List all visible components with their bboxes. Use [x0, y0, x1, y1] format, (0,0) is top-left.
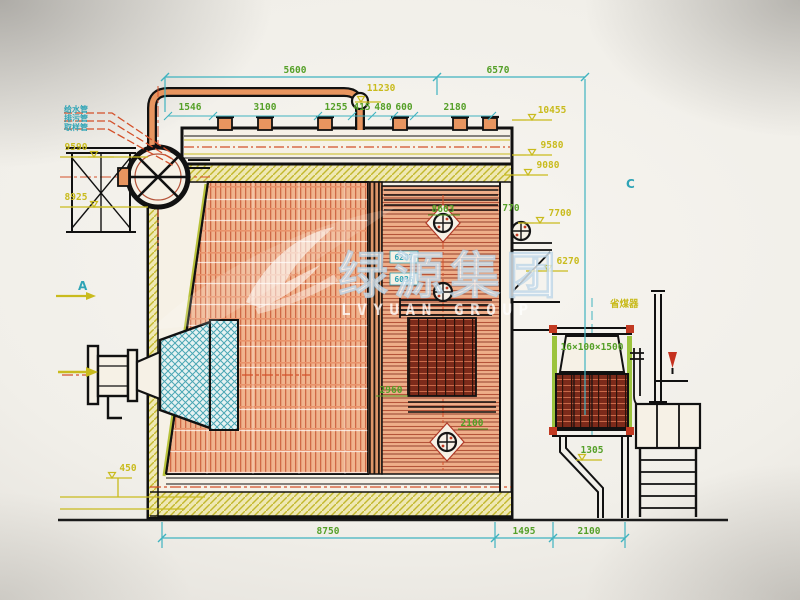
- elev-9580: 9580: [541, 140, 564, 151]
- rear-wall-tube-band: [368, 182, 382, 474]
- elev-11230: 11230: [367, 83, 396, 94]
- elev-2960: 2960: [380, 385, 403, 396]
- elev-450: 450: [119, 463, 136, 474]
- section-flag: [668, 352, 677, 368]
- elev-9080: 9080: [537, 160, 560, 171]
- elevation-target-2100: [438, 433, 456, 451]
- economizer-spec-label: 16×100×1500: [561, 342, 624, 353]
- photo-of-boiler-drawing: 5600 6570 1546 3100 1255 415 480 600 218…: [0, 0, 800, 600]
- dim-label-600: 600: [395, 102, 412, 113]
- elev-770: 770: [502, 203, 519, 214]
- elevation-target-770: [512, 222, 530, 240]
- elev-1305: 1305: [581, 445, 604, 456]
- access-ladder: [636, 404, 700, 517]
- drum-platform: [66, 148, 136, 232]
- elev-9590: 9590: [65, 142, 88, 153]
- dim-label-8750: 8750: [317, 526, 340, 537]
- pipe-label-blowdown: 排污管: [64, 113, 88, 123]
- elev-8603: 8603: [432, 204, 455, 215]
- upper-header: [182, 128, 512, 164]
- view-marker-a: A: [78, 279, 88, 293]
- bottom-insulation-band: [150, 492, 511, 516]
- elev-8925: 8925: [65, 192, 88, 203]
- elev-10455: 10455: [538, 105, 567, 116]
- dim-label-2100b: 2100: [578, 526, 601, 537]
- superheater-coil: [408, 318, 476, 396]
- dim-label-6570: 6570: [487, 65, 510, 76]
- view-marker-c: C: [626, 177, 635, 191]
- watermark-cn-text: 绿源集团: [338, 247, 562, 305]
- dim-label-1546: 1546: [179, 102, 202, 113]
- watermark-en-text: LVYUAN GROUP: [341, 300, 535, 319]
- boiler-section-drawing: 5600 6570 1546 3100 1255 415 480 600 218…: [0, 0, 800, 600]
- dim-label-2180: 2180: [444, 102, 467, 113]
- burner-throat: [160, 322, 210, 428]
- dim-label-1255: 1255: [325, 102, 348, 113]
- pipe-label-sampling: 取样管: [64, 122, 88, 132]
- standpipe: [649, 291, 667, 402]
- dim-label-480: 480: [374, 102, 391, 113]
- economizer-label: 省煤器: [609, 298, 639, 310]
- burner-wall-opening: [210, 320, 238, 430]
- left-insulation-strip: [149, 165, 158, 517]
- economizer: [512, 298, 655, 518]
- dim-label-1495: 1495: [513, 526, 536, 537]
- economizer-inlet-pipe: [630, 348, 655, 407]
- dim-label-415: 415: [353, 102, 370, 113]
- elev-7700: 7700: [549, 208, 572, 219]
- pipe-label-feedwater: 给水管: [64, 104, 88, 114]
- dim-label-5600: 5600: [284, 65, 307, 76]
- dim-label-3100: 3100: [254, 102, 277, 113]
- elev-2100: 2100: [461, 418, 484, 429]
- elevation-target-8603: [434, 214, 452, 232]
